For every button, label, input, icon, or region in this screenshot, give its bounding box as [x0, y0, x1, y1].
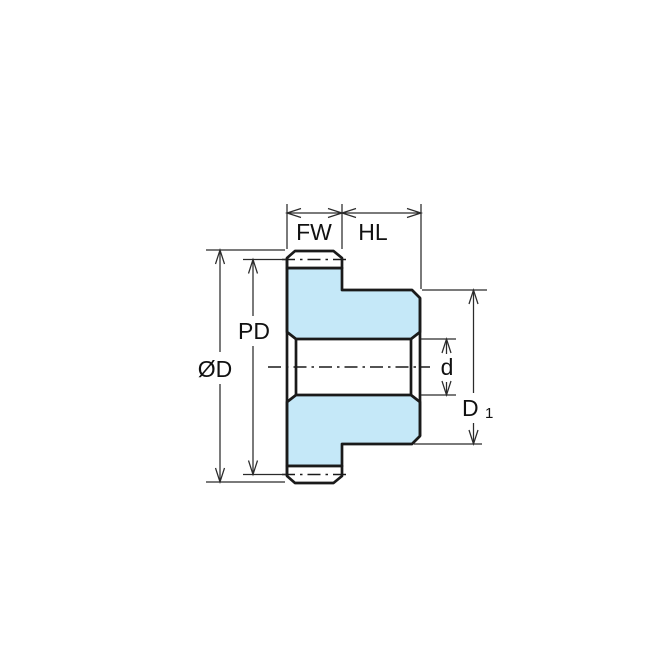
gear-upper-section [287, 268, 420, 339]
label-face-width: FW [296, 219, 332, 245]
label-outside-diameter: ØD [198, 356, 233, 382]
gear-lower-section [287, 395, 420, 466]
dimension-outside-diameter: ØD [198, 250, 285, 482]
label-hub-diameter: D 1 [462, 395, 493, 422]
label-hub-diameter-main: D [462, 395, 479, 421]
label-hub-length: HL [358, 219, 388, 245]
label-pitch-diameter: PD [238, 318, 270, 344]
gear-dimension-diagram: FW HL ØD PD [0, 0, 670, 670]
label-bore-diameter: d [441, 354, 454, 380]
drawing-canvas: FW HL ØD PD [0, 0, 670, 670]
label-hub-diameter-subscript: 1 [485, 405, 493, 422]
